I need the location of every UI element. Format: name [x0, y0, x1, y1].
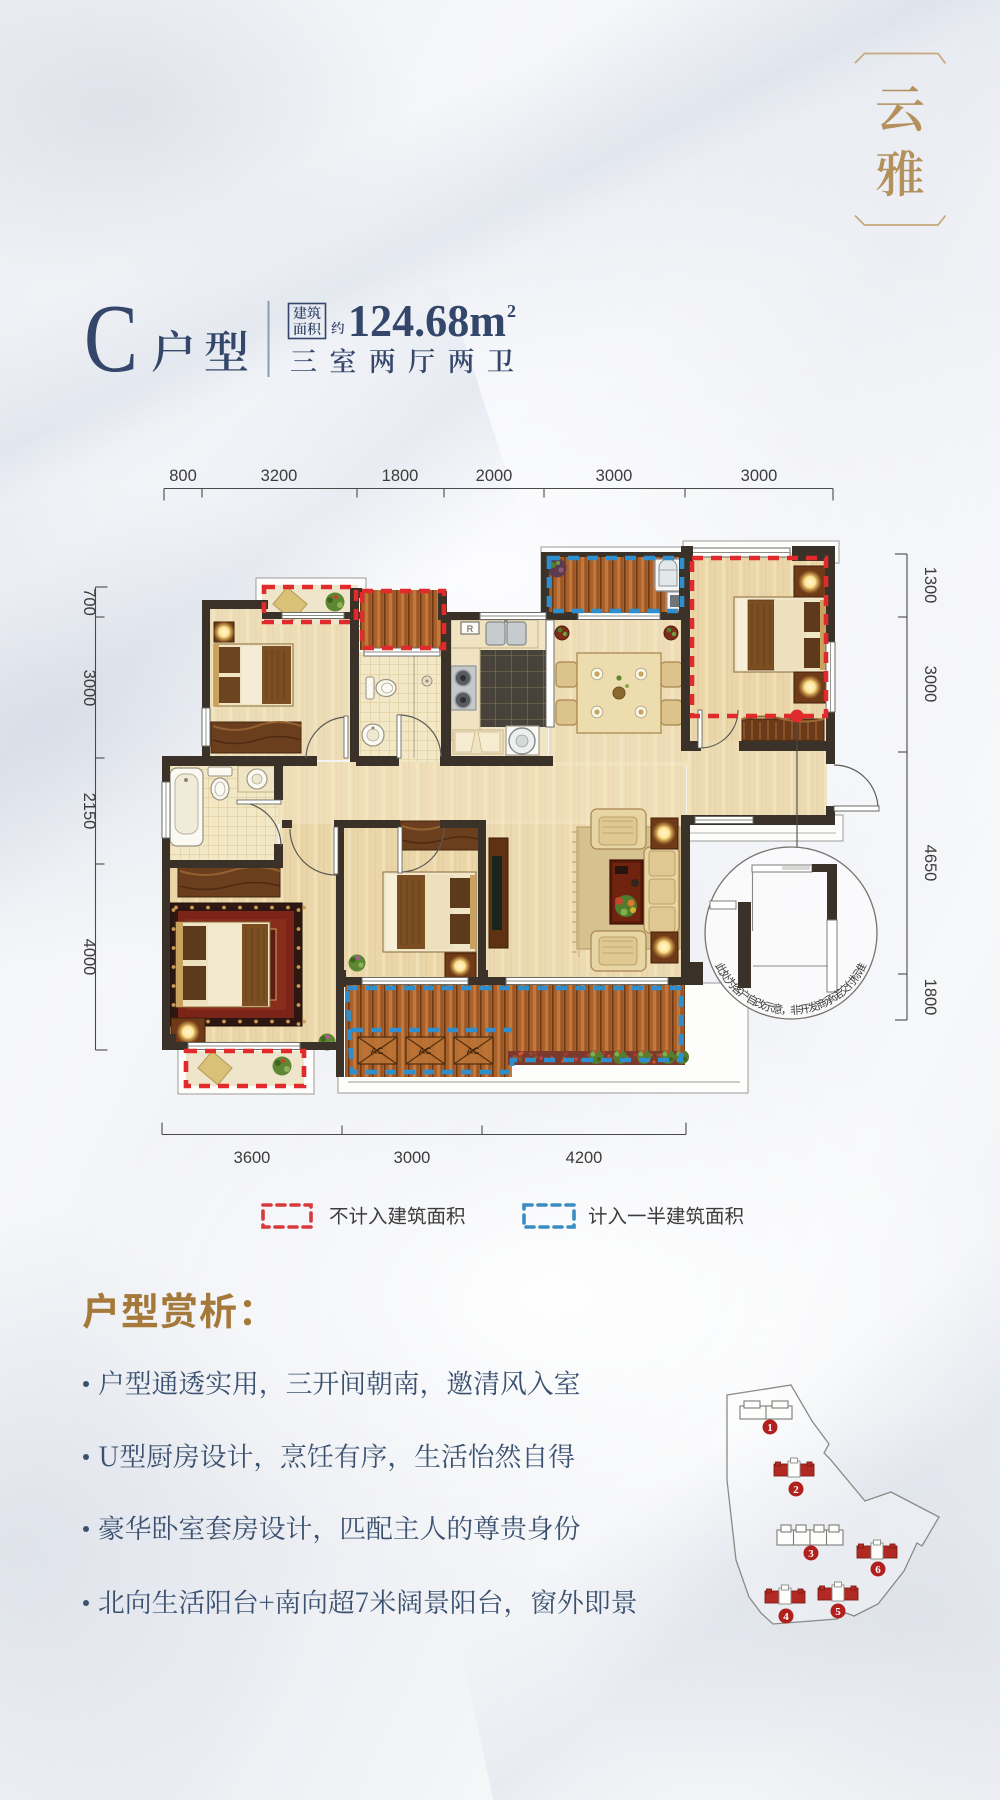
svg-text:C: C	[84, 285, 138, 392]
svg-text:2000: 2000	[476, 467, 513, 485]
svg-text:2150: 2150	[80, 793, 98, 830]
svg-text:800: 800	[169, 467, 197, 485]
svg-text:AC: AC	[467, 1046, 480, 1056]
svg-text:3200: 3200	[261, 467, 298, 485]
svg-text:124.68m: 124.68m	[348, 296, 506, 346]
svg-text:AC: AC	[419, 1046, 432, 1056]
svg-text:4650: 4650	[921, 845, 939, 882]
svg-text:1800: 1800	[382, 467, 419, 485]
svg-text:5: 5	[835, 1606, 841, 1618]
svg-text:3000: 3000	[921, 666, 939, 703]
svg-text:3600: 3600	[234, 1149, 271, 1167]
svg-text:2: 2	[507, 301, 516, 321]
svg-text:3000: 3000	[596, 467, 633, 485]
svg-text:2: 2	[793, 1484, 799, 1496]
svg-text:6: 6	[875, 1564, 881, 1576]
svg-text:4: 4	[783, 1611, 789, 1623]
svg-text:4000: 4000	[80, 939, 98, 976]
svg-text:3000: 3000	[394, 1149, 431, 1167]
svg-text:700: 700	[80, 588, 98, 616]
svg-text:3000: 3000	[80, 670, 98, 707]
svg-text:1300: 1300	[921, 567, 939, 604]
svg-text:1: 1	[767, 1422, 773, 1434]
svg-text:4200: 4200	[566, 1149, 603, 1167]
svg-text:3: 3	[808, 1548, 814, 1560]
svg-text:R: R	[467, 624, 474, 634]
svg-text:1800: 1800	[921, 979, 939, 1016]
svg-text:AC: AC	[371, 1046, 384, 1056]
svg-text:3000: 3000	[741, 467, 778, 485]
